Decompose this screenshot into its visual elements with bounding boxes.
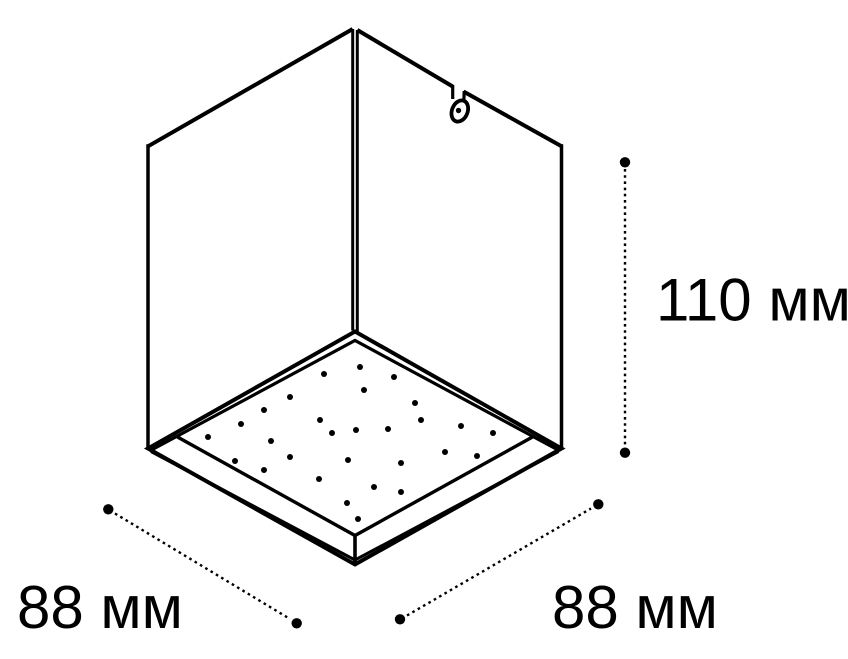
led-dot: [355, 516, 361, 522]
base-face: [148, 332, 562, 565]
led-dot: [205, 434, 211, 440]
led-dot: [317, 417, 323, 423]
height-dimension: 110 мм: [620, 157, 848, 458]
luminaire-drawing-svg: 110 мм 88 мм 88 мм: [0, 0, 848, 659]
led-dot: [361, 387, 367, 393]
led-dot: [268, 438, 274, 444]
led-dot: [287, 454, 293, 460]
led-dot: [238, 421, 244, 427]
depth-dimension-right: 88 мм: [395, 499, 718, 641]
led-dot: [385, 426, 391, 432]
base-upper-inner-rim: [151, 341, 560, 451]
base-outer-rim: [148, 332, 562, 565]
dimension-endpoint-dot: [620, 157, 630, 167]
dimension-endpoint-dot: [395, 614, 405, 624]
dimension-endpoint-dot: [103, 504, 113, 514]
led-dot: [261, 467, 267, 473]
led-panel-edge: [178, 437, 533, 536]
dimension-endpoint-dot: [292, 618, 302, 628]
led-dot: [398, 460, 404, 466]
height-dimension-label: 110 мм: [656, 267, 848, 334]
width-dimension-label: 88 мм: [17, 574, 183, 641]
led-dot: [398, 489, 404, 495]
led-dot: [353, 427, 359, 433]
led-dot: [391, 374, 397, 380]
dimension-endpoint-dot: [593, 499, 603, 509]
led-dot: [458, 423, 464, 429]
led-dot: [357, 364, 363, 370]
led-dot: [287, 394, 293, 400]
led-dot: [412, 400, 418, 406]
led-dot: [418, 417, 424, 423]
led-dot: [261, 407, 267, 413]
cube-top-right-edge-upper: [357, 30, 452, 87]
cube-top-left-edge: [148, 29, 353, 146]
luminaire-body: [148, 29, 562, 450]
led-dot: [371, 484, 377, 490]
led-dot: [321, 371, 327, 377]
depth-dimension-label: 88 мм: [552, 574, 718, 641]
dimension-endpoint-dot: [620, 448, 630, 458]
mounting-eyelet: [448, 85, 471, 124]
led-dot: [345, 457, 351, 463]
led-dot: [232, 458, 238, 464]
led-dot: [329, 430, 335, 436]
led-dot: [474, 453, 480, 459]
led-dot: [316, 476, 322, 482]
mounting-eyelet-hole: [456, 108, 461, 113]
drawing-canvas: 110 мм 88 мм 88 мм: [0, 0, 848, 659]
led-dot: [442, 449, 448, 455]
led-dot: [490, 430, 496, 436]
cube-top-right-edge-lower: [464, 92, 562, 147]
led-dot: [344, 500, 350, 506]
width-dimension-left: 88 мм: [17, 504, 302, 641]
